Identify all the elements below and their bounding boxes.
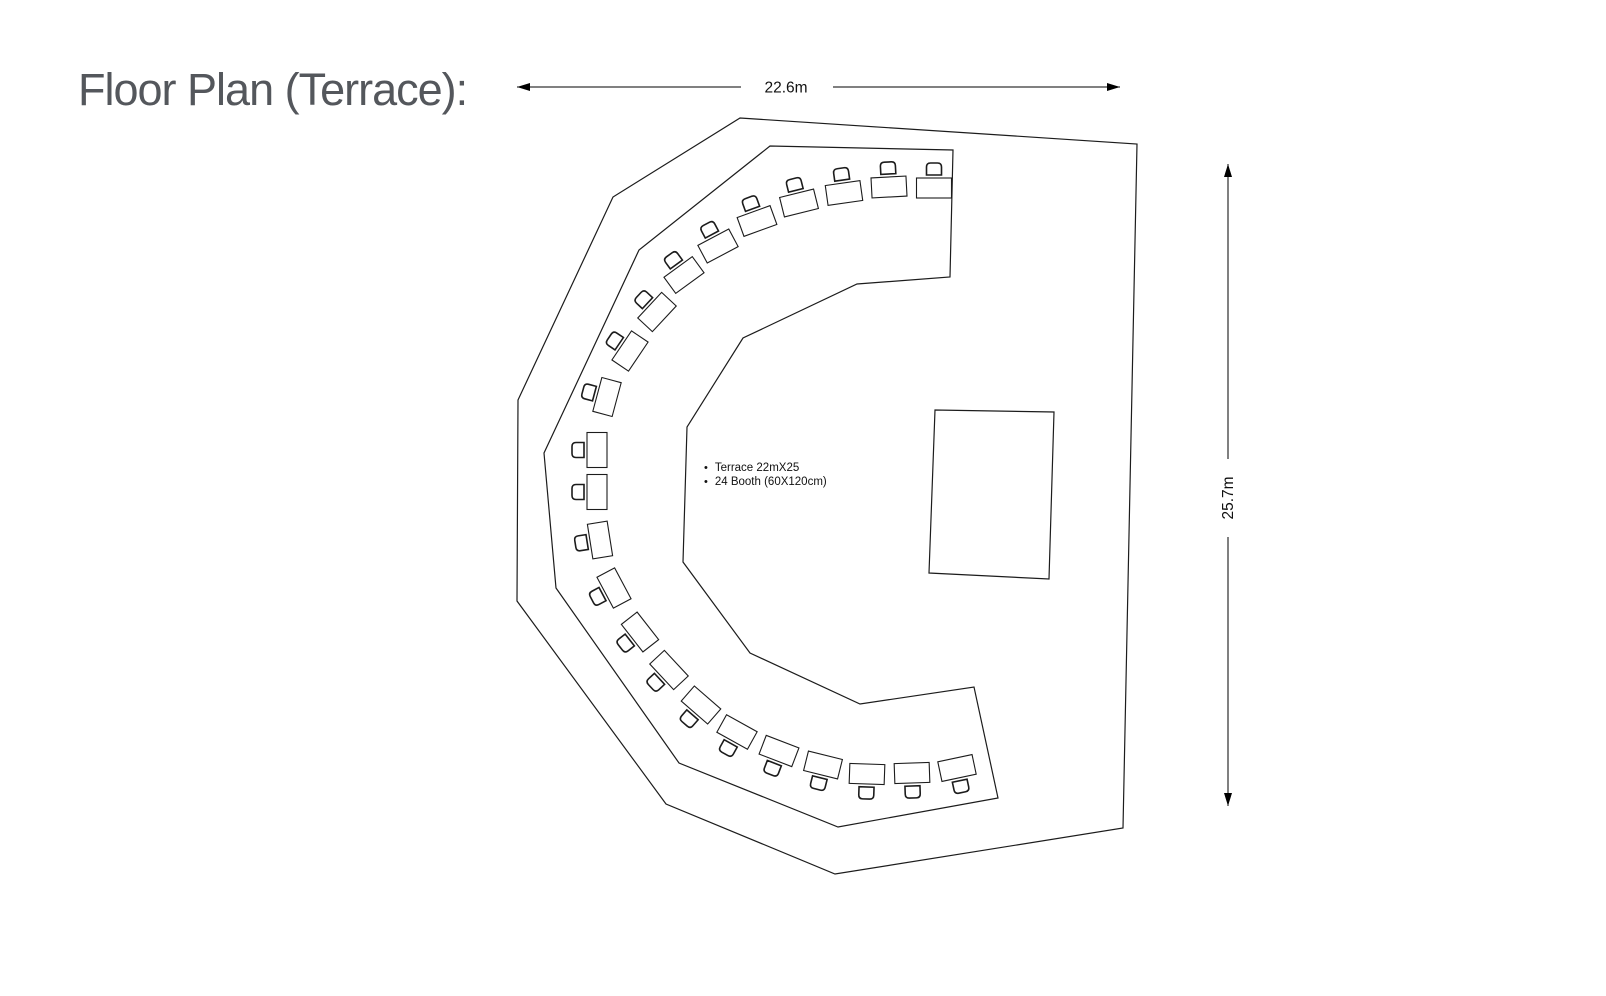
stage-rect: [929, 410, 1054, 579]
chair-icon: [880, 162, 896, 175]
height-dimension-label: 25.7m: [1220, 476, 1237, 519]
booth-with-chair: [894, 762, 930, 798]
booth-table: [825, 181, 862, 206]
booth-with-chair: [938, 755, 980, 797]
chair-icon: [905, 786, 920, 799]
booth-table: [587, 433, 607, 468]
booth-with-chair: [572, 475, 607, 510]
note-item: Terrace 22mX25: [704, 462, 827, 476]
chair-icon: [810, 776, 827, 791]
booth-with-chair: [578, 374, 621, 417]
arrow-up-icon: [1224, 164, 1232, 177]
booth-with-chair: [849, 763, 885, 799]
booth-with-chair: [572, 433, 607, 468]
arrow-right-icon: [1107, 83, 1120, 91]
booth-with-chair: [800, 751, 842, 793]
booth-with-chair: [627, 282, 676, 331]
booth-table: [737, 206, 777, 237]
booth-with-chair: [710, 715, 758, 763]
booth-table: [917, 178, 952, 198]
arrow-left-icon: [517, 83, 530, 91]
booth-table: [759, 735, 799, 766]
booth-with-chair: [870, 161, 907, 198]
chair-icon: [833, 167, 850, 181]
dimension-vertical: 25.7m: [1220, 164, 1237, 806]
booth-with-chair: [917, 163, 952, 198]
booth-table: [587, 521, 612, 559]
booth-table: [804, 751, 843, 779]
arrow-down-icon: [1224, 793, 1232, 806]
booth-with-chair: [655, 244, 704, 293]
booth-with-chair: [732, 192, 777, 237]
plan-notes-list: Terrace 22mX25 24 Booth (60X120cm): [704, 462, 827, 489]
note-item: 24 Booth (60X120cm): [704, 476, 827, 490]
chair-icon: [952, 779, 969, 794]
booth-table: [849, 763, 885, 784]
chair-icon: [572, 443, 584, 458]
booth-table: [780, 189, 819, 217]
chair-icon: [741, 195, 759, 211]
chair-icon: [859, 787, 874, 800]
booth-with-chair: [639, 650, 688, 699]
chair-icon: [574, 535, 588, 552]
plan-notes: Terrace 22mX25 24 Booth (60X120cm): [704, 462, 827, 489]
booth-with-chair: [754, 735, 799, 780]
floor-plan-page: Floor Plan (Terrace): 22.6m 25.7m: [0, 0, 1606, 996]
booth-with-chair: [584, 568, 631, 615]
chair-icon: [763, 760, 781, 777]
floor-plan-svg: 22.6m 25.7m: [0, 0, 1606, 996]
booth-with-chair: [776, 175, 818, 217]
booth-table: [938, 755, 976, 782]
booth-with-chair: [610, 612, 659, 661]
booth-table: [871, 176, 907, 198]
booth-table: [593, 378, 621, 417]
chair-icon: [786, 177, 803, 192]
booth-with-chair: [671, 686, 720, 735]
booth-with-chair: [599, 323, 648, 372]
booth-table: [587, 475, 607, 510]
booth-with-chair: [823, 166, 863, 206]
booth-with-chair: [573, 521, 613, 561]
chair-icon: [572, 485, 584, 500]
booth-with-chair: [691, 216, 738, 263]
chair-icon: [927, 163, 942, 175]
chair-icon: [581, 383, 596, 401]
booth-table: [894, 762, 930, 783]
width-dimension-label: 22.6m: [764, 80, 807, 97]
dimension-horizontal: 22.6m: [517, 80, 1120, 97]
